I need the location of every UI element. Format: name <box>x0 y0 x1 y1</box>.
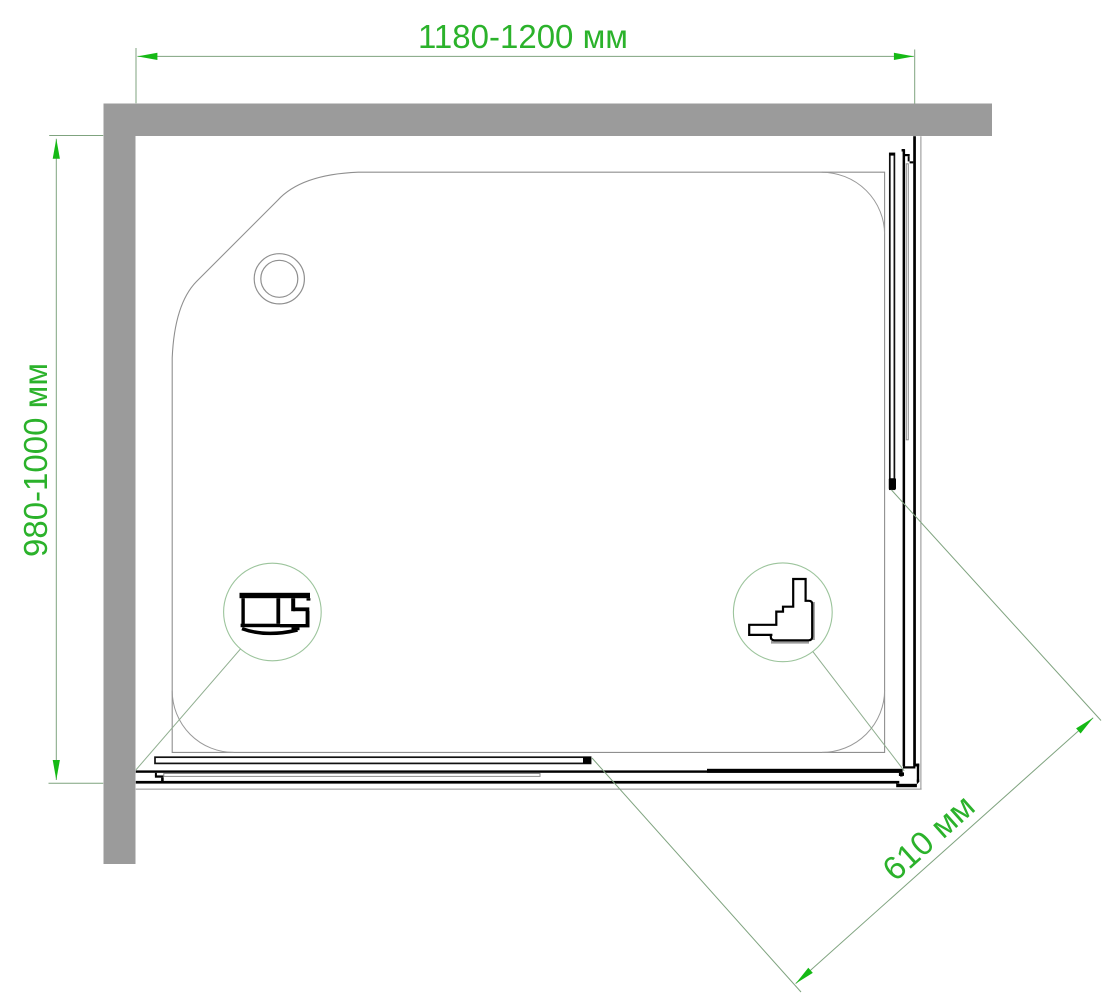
svg-text:980-1000 мм: 980-1000 мм <box>17 363 54 557</box>
svg-text:1180-1200 мм: 1180-1200 мм <box>418 18 628 55</box>
